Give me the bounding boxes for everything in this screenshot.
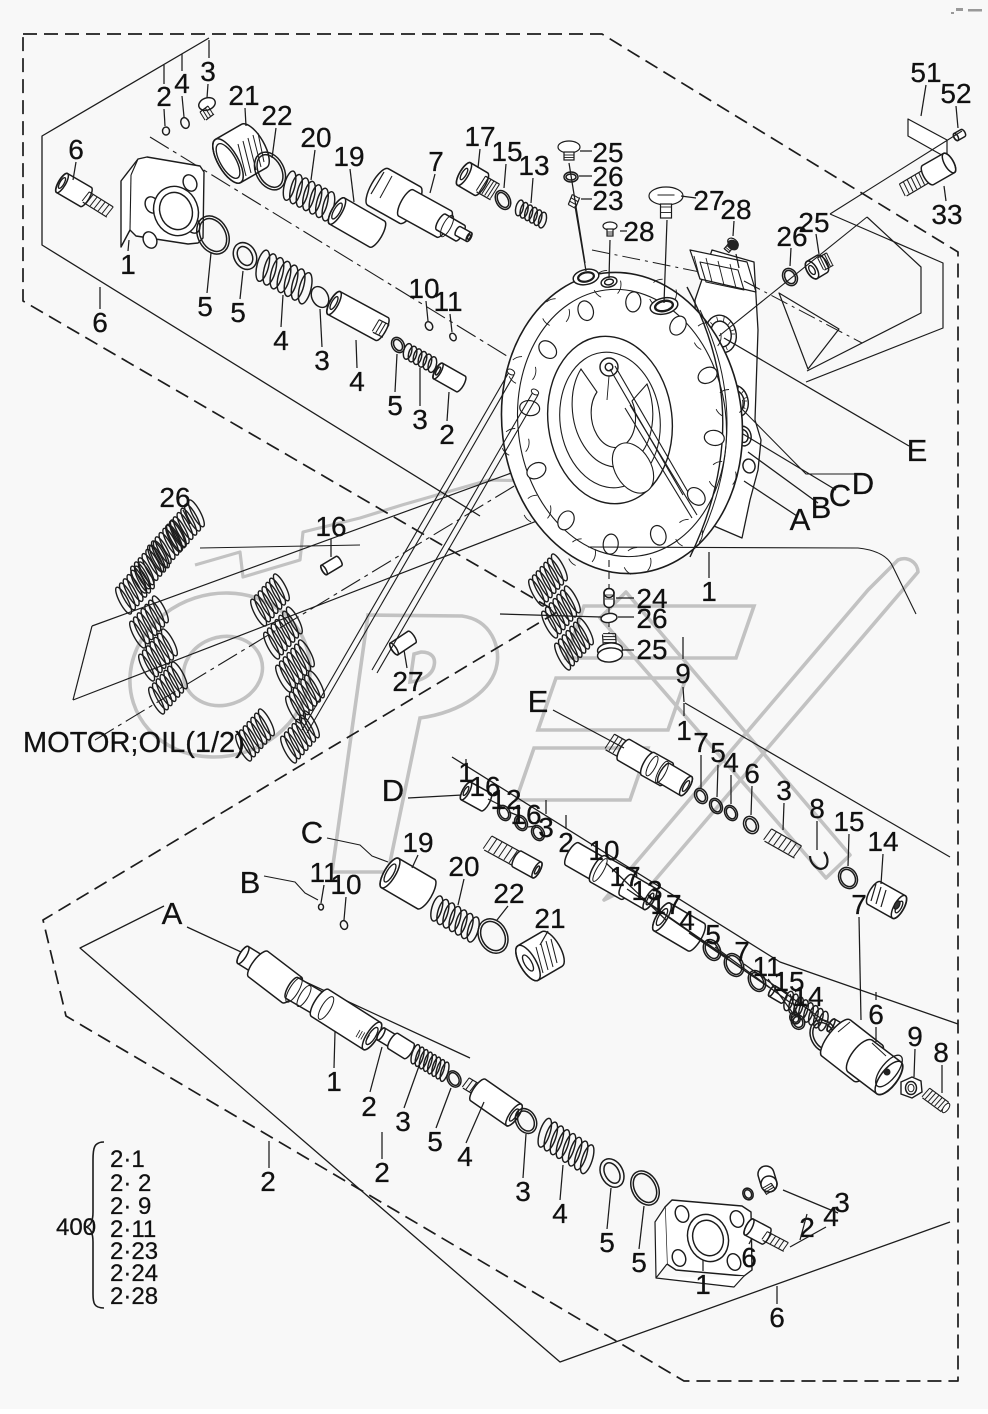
svg-text:25: 25 (798, 207, 829, 238)
svg-text:1: 1 (701, 576, 717, 607)
svg-text:11: 11 (433, 286, 462, 317)
svg-text:3: 3 (834, 1187, 850, 1218)
svg-text:8: 8 (809, 793, 825, 824)
svg-text:2: 2 (799, 1212, 815, 1243)
svg-text:1: 1 (326, 1066, 342, 1097)
svg-text:6: 6 (868, 999, 884, 1030)
svg-text:5: 5 (599, 1227, 615, 1258)
svg-text:B: B (240, 865, 261, 900)
svg-text:5: 5 (705, 919, 721, 950)
svg-text:6: 6 (744, 758, 760, 789)
svg-text:A: A (162, 896, 183, 931)
svg-text:10: 10 (330, 869, 361, 900)
svg-text:15: 15 (833, 806, 864, 837)
svg-text:21: 21 (228, 80, 259, 111)
svg-text:3: 3 (314, 345, 330, 376)
svg-text:4: 4 (723, 747, 739, 778)
svg-text:1: 1 (120, 249, 136, 280)
svg-text:52: 52 (940, 78, 971, 109)
svg-text:2: 2 (374, 1157, 390, 1188)
svg-text:16: 16 (510, 799, 541, 830)
svg-text:4: 4 (552, 1198, 568, 1229)
svg-text:D: D (382, 773, 404, 808)
svg-text:E: E (528, 684, 549, 719)
svg-text:4: 4 (679, 905, 695, 936)
svg-text:33: 33 (931, 199, 962, 230)
svg-text:14: 14 (867, 826, 898, 857)
svg-text:C: C (829, 478, 851, 513)
svg-text:1: 1 (695, 1269, 711, 1300)
svg-text:4: 4 (174, 68, 190, 99)
svg-text:5: 5 (197, 291, 213, 322)
svg-text:20: 20 (300, 122, 331, 153)
svg-text:1: 1 (676, 715, 692, 746)
svg-text:2·28: 2·28 (110, 1283, 158, 1310)
svg-text:28: 28 (720, 194, 751, 225)
svg-text:9: 9 (675, 658, 691, 689)
svg-text:3: 3 (515, 1176, 531, 1207)
svg-text:8: 8 (933, 1037, 949, 1068)
svg-text:9: 9 (907, 1021, 923, 1052)
svg-text:6: 6 (68, 134, 84, 165)
svg-text:6: 6 (769, 1302, 785, 1333)
svg-text:2: 2 (439, 419, 455, 450)
svg-text:25: 25 (636, 634, 667, 665)
svg-text:14: 14 (792, 981, 823, 1012)
svg-text:19: 19 (402, 827, 433, 858)
svg-text:51: 51 (910, 57, 941, 88)
svg-text:5: 5 (387, 390, 403, 421)
svg-text:D: D (852, 466, 874, 501)
svg-text:7: 7 (734, 936, 750, 967)
svg-text:13: 13 (518, 150, 549, 181)
svg-text:27: 27 (392, 666, 423, 697)
svg-text:E: E (907, 433, 928, 468)
svg-text:3: 3 (412, 404, 428, 435)
svg-text:7: 7 (428, 146, 444, 177)
svg-text:20: 20 (448, 851, 479, 882)
svg-text:17: 17 (650, 889, 681, 920)
svg-text:5: 5 (631, 1247, 647, 1278)
svg-text:2: 2 (156, 81, 172, 112)
svg-text:26: 26 (636, 603, 667, 634)
svg-text:B: B (811, 490, 832, 525)
svg-text:5: 5 (427, 1126, 443, 1157)
svg-text:23: 23 (592, 185, 623, 216)
svg-text:5: 5 (230, 297, 246, 328)
svg-text:4: 4 (349, 366, 365, 397)
svg-text:16: 16 (315, 511, 346, 542)
svg-text:28: 28 (623, 216, 654, 247)
svg-text:C: C (301, 815, 323, 850)
svg-text:6: 6 (92, 307, 108, 338)
svg-text:3: 3 (200, 56, 216, 87)
svg-text:2·1: 2·1 (110, 1146, 145, 1173)
svg-text:400: 400 (56, 1214, 96, 1241)
svg-text:3: 3 (776, 775, 792, 806)
svg-text:7: 7 (851, 889, 867, 920)
svg-text:4: 4 (457, 1141, 473, 1172)
svg-text:6: 6 (741, 1242, 757, 1273)
svg-text:19: 19 (333, 141, 364, 172)
svg-text:3: 3 (395, 1106, 411, 1137)
svg-text:MOTOR;OIL(1/2): MOTOR;OIL(1/2) (23, 727, 245, 759)
svg-text:A: A (790, 502, 811, 537)
svg-text:3: 3 (538, 812, 554, 843)
svg-text:21: 21 (534, 903, 565, 934)
svg-text:2: 2 (361, 1091, 377, 1122)
svg-text:26: 26 (159, 482, 190, 513)
svg-text:7: 7 (693, 727, 709, 758)
svg-text:22: 22 (493, 878, 524, 909)
svg-text:4: 4 (273, 325, 289, 356)
svg-text:22: 22 (261, 100, 292, 131)
svg-text:2: 2 (260, 1166, 276, 1197)
